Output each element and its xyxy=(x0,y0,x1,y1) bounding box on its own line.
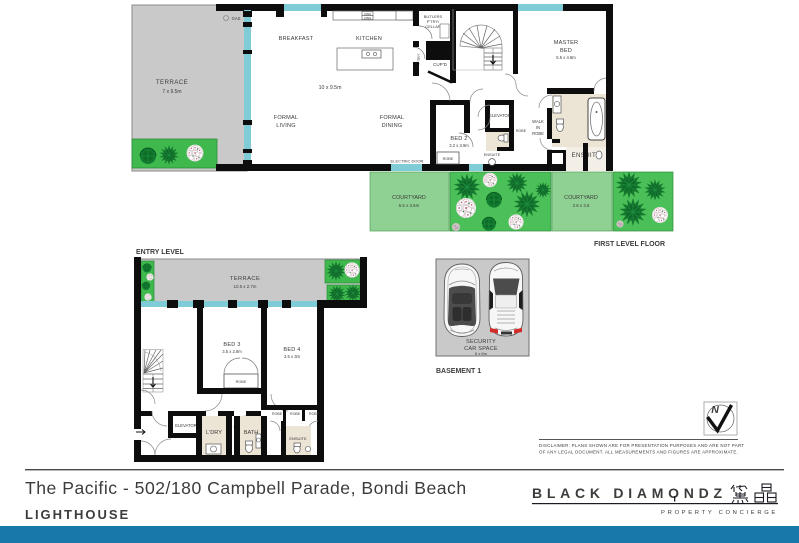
svg-text:IN: IN xyxy=(536,125,540,130)
svg-text:DISCLAIMER: PLANS SHOWN ARE F: DISCLAIMER: PLANS SHOWN ARE FOR PRESENTA… xyxy=(539,443,744,448)
svg-text:N: N xyxy=(711,404,719,416)
svg-text:BREAKFAST: BREAKFAST xyxy=(279,36,314,42)
svg-text:PROPERTY CONCIERGE: PROPERTY CONCIERGE xyxy=(661,510,778,516)
svg-text:KITCHEN: KITCHEN xyxy=(356,36,382,42)
svg-text:ROBE: ROBE xyxy=(272,412,283,416)
svg-text:ELEVATOR: ELEVATOR xyxy=(175,423,197,428)
svg-text:ELEVATOR: ELEVATOR xyxy=(489,113,511,118)
svg-text:ENTRY LEVEL: ENTRY LEVEL xyxy=(136,249,185,256)
svg-text:BED 2: BED 2 xyxy=(450,136,467,142)
svg-text:BED: BED xyxy=(560,48,572,54)
svg-text:ROBE: ROBE xyxy=(443,157,454,161)
svg-text:ROBE: ROBE xyxy=(516,129,527,133)
svg-text:OVEN: OVEN xyxy=(364,12,371,16)
svg-text:ROBE: ROBE xyxy=(290,412,301,416)
svg-text:BED 4: BED 4 xyxy=(283,347,300,353)
svg-text:3.5 x 2.8m: 3.5 x 2.8m xyxy=(222,349,242,354)
svg-text:BASEMENT 1: BASEMENT 1 xyxy=(436,368,481,375)
svg-text:COURTYARD: COURTYARD xyxy=(392,195,426,201)
svg-text:3.5 x 3m: 3.5 x 3m xyxy=(284,354,301,359)
svg-text:ROBE: ROBE xyxy=(309,412,320,416)
svg-text:FORMAL: FORMAL xyxy=(274,115,299,121)
svg-text:L'DRY: L'DRY xyxy=(206,430,222,436)
svg-text:ELECTRIC DOOR: ELECTRIC DOOR xyxy=(391,159,424,164)
svg-text:FIRST LEVEL FLOOR: FIRST LEVEL FLOOR xyxy=(594,241,665,248)
svg-text:LIGHTHOUSE: LIGHTHOUSE xyxy=(25,507,130,522)
svg-text:WALK: WALK xyxy=(532,119,544,124)
svg-text:BED 3: BED 3 xyxy=(223,342,240,348)
svg-text:5.5 x 4.8m: 5.5 x 4.8m xyxy=(556,55,576,60)
svg-text:The Pacific - 502/180 Campbell: The Pacific - 502/180 Campbell Parade, B… xyxy=(25,478,467,498)
svg-text:COURTYARD: COURTYARD xyxy=(564,195,598,201)
svg-text:ENSUITE: ENSUITE xyxy=(484,153,501,157)
svg-text:FORMAL: FORMAL xyxy=(380,115,405,121)
svg-text:2.6 x 3.6: 2.6 x 3.6 xyxy=(573,203,590,208)
svg-text:DINING: DINING xyxy=(382,123,403,129)
svg-text:ROBE: ROBE xyxy=(236,380,247,384)
svg-text:TERRACE: TERRACE xyxy=(156,79,188,86)
svg-text:OVEN: OVEN xyxy=(364,16,371,20)
svg-text:10.5 x 2.7m: 10.5 x 2.7m xyxy=(234,284,257,289)
svg-text:5.5 x 3.6m: 5.5 x 3.6m xyxy=(399,203,420,208)
svg-text:ENSUITE: ENSUITE xyxy=(289,436,307,441)
svg-text:3.2 x 3.9m: 3.2 x 3.9m xyxy=(449,143,469,148)
svg-text:LIVING: LIVING xyxy=(276,123,296,129)
svg-text:SECURITY: SECURITY xyxy=(466,339,496,345)
svg-text:CUP'D: CUP'D xyxy=(433,62,448,67)
svg-text:OF ANY LEGAL DOCUMENT. ALL ME: OF ANY LEGAL DOCUMENT. ALL MEASUREMENTS … xyxy=(539,450,738,455)
svg-text:7 x 9.5m: 7 x 9.5m xyxy=(162,89,181,95)
svg-text:TERRACE: TERRACE xyxy=(230,276,261,282)
svg-text:10 x 9.5m: 10 x 9.5m xyxy=(319,85,342,91)
svg-text:MASTER: MASTER xyxy=(554,40,579,46)
svg-text:CELLAR: CELLAR xyxy=(425,24,441,29)
svg-text:6 x 6m: 6 x 6m xyxy=(475,351,488,356)
svg-text:GAS: GAS xyxy=(232,16,241,21)
svg-text:ROBE: ROBE xyxy=(532,131,544,136)
